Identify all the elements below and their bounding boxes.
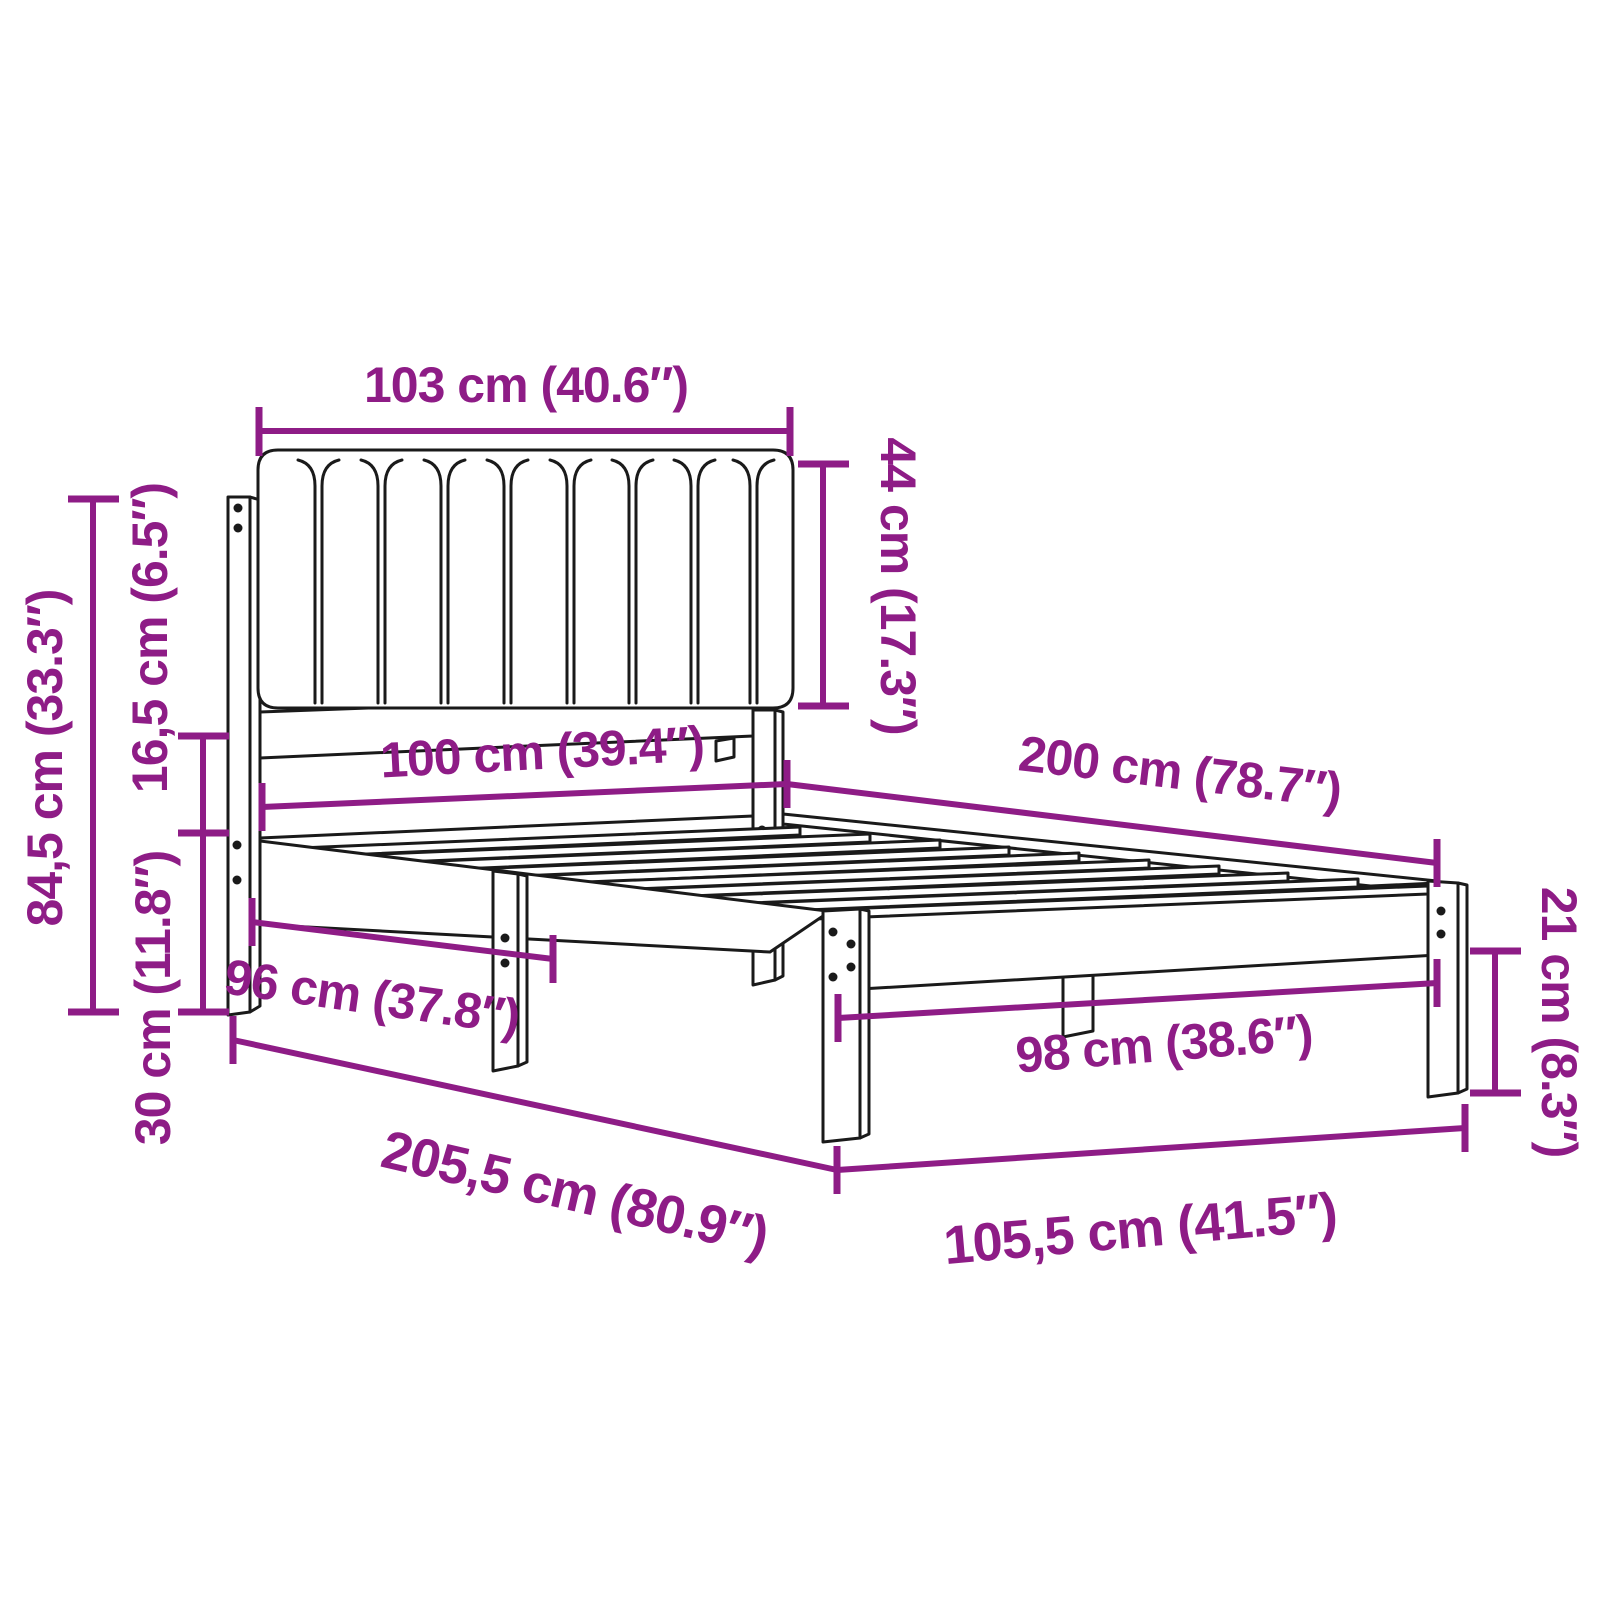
label-mattress-length: 200 cm (78.7″): [1016, 725, 1344, 818]
bed-dimension-diagram: 103 cm (40.6″) 44 cm (17.3″) 84,5 cm (33…: [0, 0, 1600, 1600]
label-headboard-width: 103 cm (40.6″): [364, 357, 688, 413]
dim-foot-leg-height: [1470, 951, 1521, 1093]
foot-near-leg: [823, 909, 869, 1142]
bed-dimension-diagram-page: 103 cm (40.6″) 44 cm (17.3″) 84,5 cm (33…: [0, 0, 1600, 1600]
label-side-leg-clear-span: 96 cm (37.8″): [221, 949, 523, 1046]
dim-total-width: [837, 1104, 1465, 1170]
dim-headboard-cushion-height: [798, 464, 849, 706]
label-underbed-clearance: 30 cm (11.8″): [125, 851, 181, 1145]
label-total-width: 105,5 cm (41.5″): [941, 1182, 1339, 1276]
label-side-rail-height: 16,5 cm (6.5″): [122, 483, 178, 793]
dim-underbed-clearance: [178, 833, 229, 1012]
dim-side-rail-height: [178, 736, 229, 833]
label-headboard-cushion-height: 44 cm (17.3″): [870, 437, 926, 734]
label-foot-leg-clear-span: 98 cm (38.6″): [1014, 1004, 1315, 1083]
headboard-center-tab: [716, 738, 734, 761]
label-foot-leg-height: 21 cm (8.3″): [1531, 887, 1587, 1157]
headboard-cushion: [258, 450, 793, 708]
label-headboard-total-height: 84,5 cm (33.3″): [17, 590, 73, 927]
dim-headboard-total-height: [68, 499, 119, 1012]
